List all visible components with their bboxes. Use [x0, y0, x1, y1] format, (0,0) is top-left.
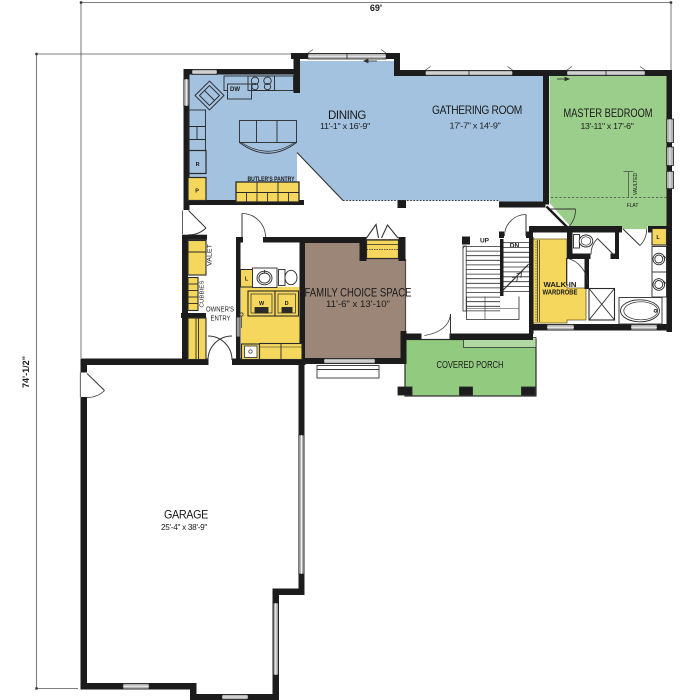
- svg-text:D: D: [285, 301, 289, 307]
- svg-text:MASTER BEDROOM: MASTER BEDROOM: [564, 108, 653, 120]
- svg-text:R: R: [196, 162, 200, 168]
- svg-text:WALK-IN: WALK-IN: [544, 282, 577, 289]
- svg-text:VALET: VALET: [208, 244, 214, 266]
- svg-text:COVERED PORCH: COVERED PORCH: [437, 359, 504, 371]
- svg-text:25'-4" x 38'-9": 25'-4" x 38'-9": [161, 522, 207, 532]
- svg-text:69': 69': [370, 3, 382, 13]
- svg-text:ENTRY: ENTRY: [211, 316, 231, 323]
- svg-text:13'-11" x 17'-6": 13'-11" x 17'-6": [581, 121, 634, 131]
- svg-text:DW: DW: [230, 87, 240, 93]
- svg-text:OWNER'S: OWNER'S: [206, 307, 234, 314]
- svg-text:17'-7" x 14'-9": 17'-7" x 14'-9": [450, 121, 501, 131]
- svg-text:FAMILY CHOICE SPACE: FAMILY CHOICE SPACE: [305, 288, 412, 300]
- svg-text:FLAT: FLAT: [627, 203, 639, 209]
- svg-text:DINING: DINING: [328, 108, 366, 122]
- svg-text:CUBBIES: CUBBIES: [200, 280, 206, 307]
- svg-text:11'-6" x 13'-10": 11'-6" x 13'-10": [326, 299, 390, 309]
- svg-text:WARDROBE: WARDROBE: [543, 290, 578, 297]
- svg-text:P: P: [195, 189, 199, 195]
- svg-text:DN: DN: [510, 243, 520, 250]
- svg-text:GATHERING ROOM: GATHERING ROOM: [432, 103, 522, 117]
- svg-text:74'-1/2": 74'-1/2": [21, 356, 31, 388]
- svg-text:UP: UP: [480, 238, 490, 245]
- svg-text:VAULTED: VAULTED: [633, 172, 639, 195]
- svg-text:BUTLER'S PANTRY: BUTLER'S PANTRY: [248, 176, 296, 183]
- svg-text:GARAGE: GARAGE: [164, 508, 208, 522]
- svg-text:11'-1" x 16'-9": 11'-1" x 16'-9": [320, 121, 370, 131]
